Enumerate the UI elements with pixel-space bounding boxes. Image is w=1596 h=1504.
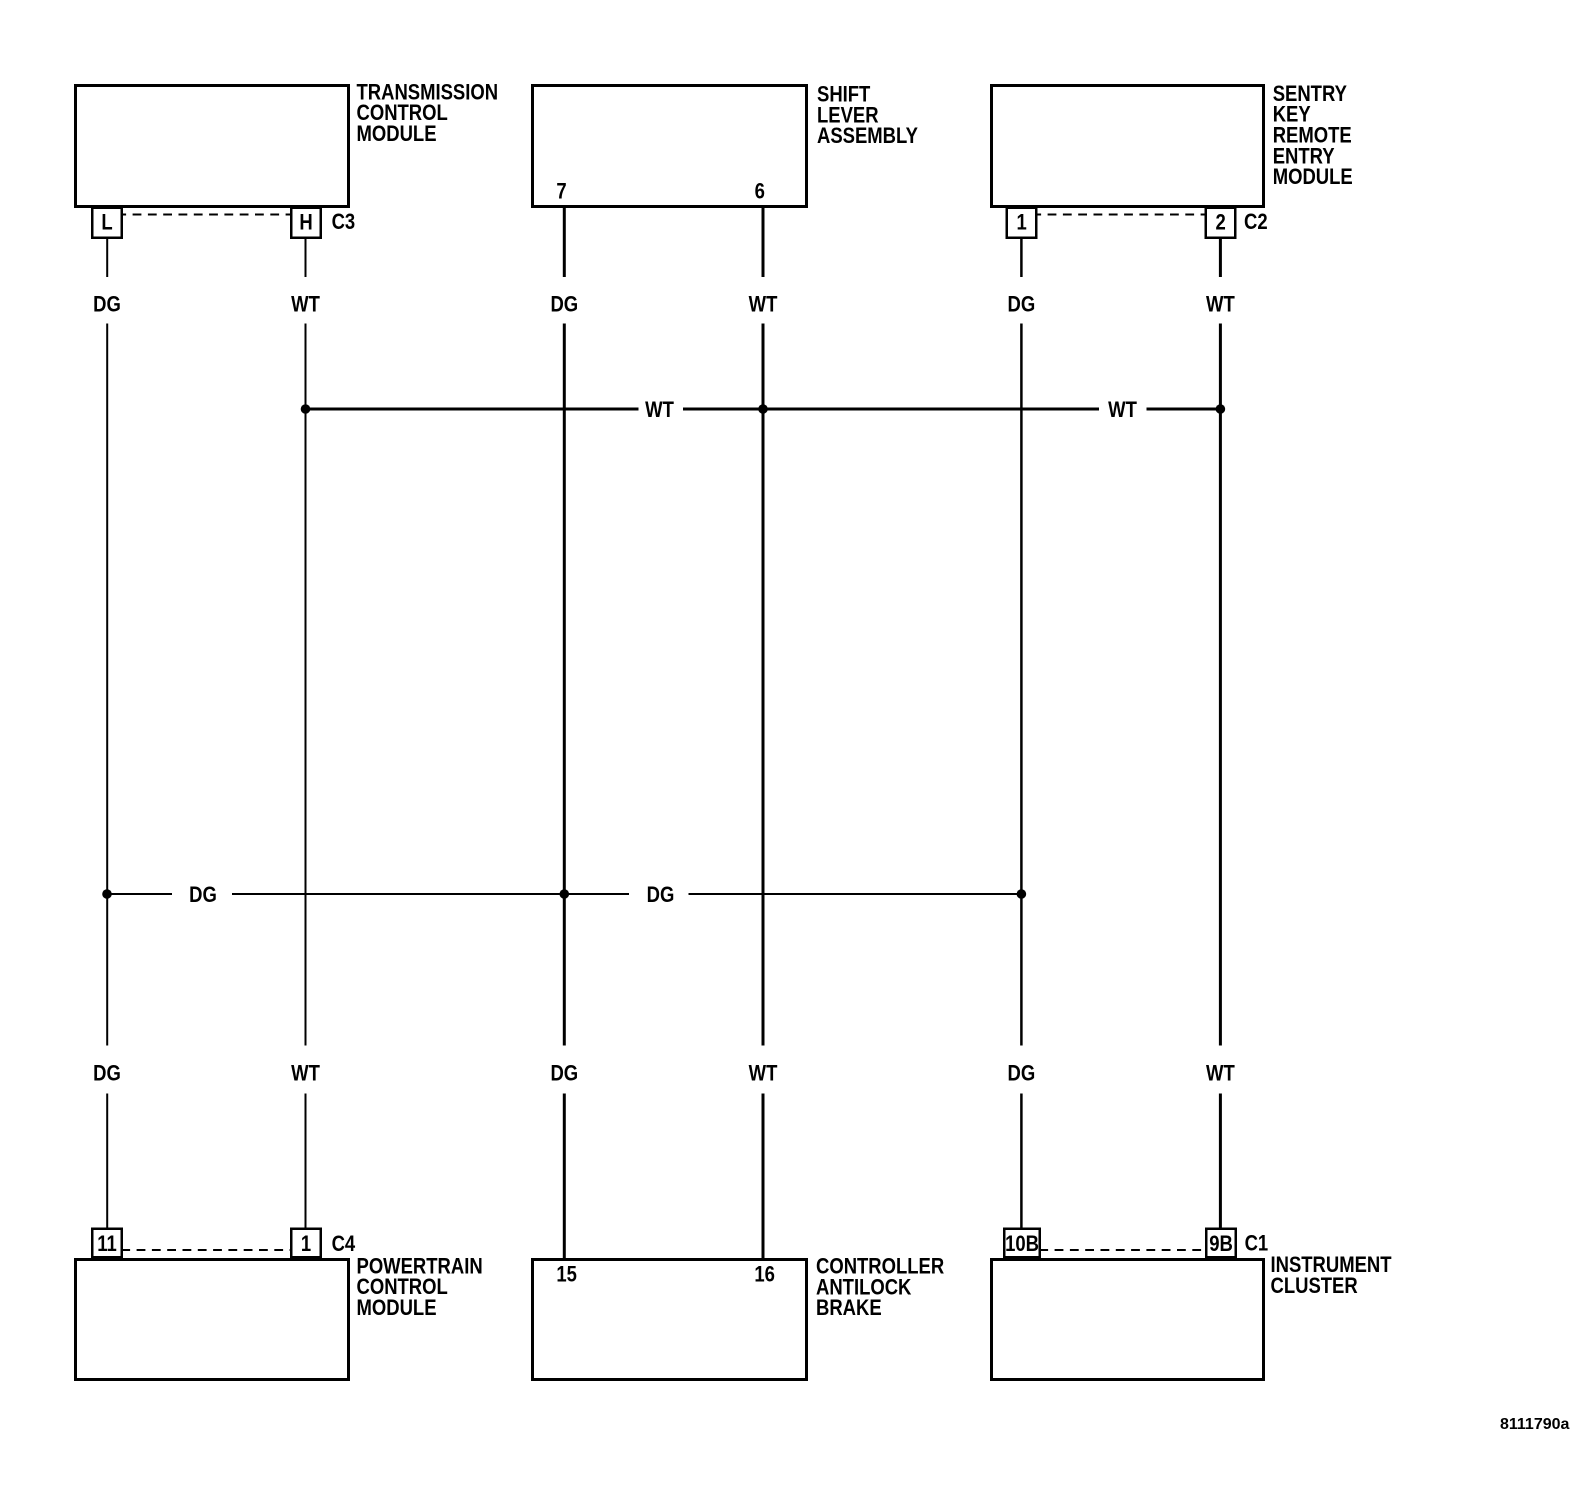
svg-text:DG: DG (647, 882, 675, 907)
svg-text:9B: 9B (1209, 1231, 1233, 1256)
svg-text:DG: DG (1008, 1061, 1036, 1086)
svg-text:1: 1 (301, 1231, 311, 1256)
svg-text:C2: C2 (1244, 210, 1268, 235)
svg-text:SENTRYKEYREMOTEENTRYMODULE: SENTRYKEYREMOTEENTRYMODULE (1273, 81, 1353, 189)
svg-text:DG: DG (93, 1061, 121, 1086)
svg-text:2: 2 (1215, 210, 1225, 235)
svg-text:WT: WT (1206, 292, 1235, 317)
svg-text:C3: C3 (332, 210, 356, 235)
svg-text:DG: DG (93, 292, 121, 317)
svg-text:10B: 10B (1005, 1231, 1039, 1256)
svg-text:WT: WT (749, 292, 778, 317)
svg-text:WT: WT (1108, 398, 1137, 423)
svg-text:H: H (299, 210, 312, 235)
svg-text:WT: WT (645, 398, 674, 423)
svg-text:L: L (101, 210, 112, 235)
svg-text:DG: DG (550, 292, 578, 317)
svg-text:11: 11 (97, 1231, 117, 1256)
svg-text:WT: WT (1206, 1061, 1235, 1086)
svg-text:6: 6 (755, 179, 765, 204)
svg-text:DG: DG (1008, 292, 1036, 317)
svg-text:DG: DG (189, 882, 217, 907)
svg-text:15: 15 (556, 1262, 577, 1287)
svg-text:DG: DG (550, 1061, 578, 1086)
svg-text:1: 1 (1016, 210, 1026, 235)
svg-text:C4: C4 (332, 1231, 356, 1256)
svg-text:7: 7 (556, 179, 566, 204)
svg-text:8111790a: 8111790a (1500, 1416, 1570, 1433)
svg-text:WT: WT (291, 292, 320, 317)
svg-text:C1: C1 (1245, 1231, 1269, 1256)
svg-text:WT: WT (291, 1061, 320, 1086)
svg-text:WT: WT (749, 1061, 778, 1086)
svg-text:16: 16 (754, 1262, 775, 1287)
